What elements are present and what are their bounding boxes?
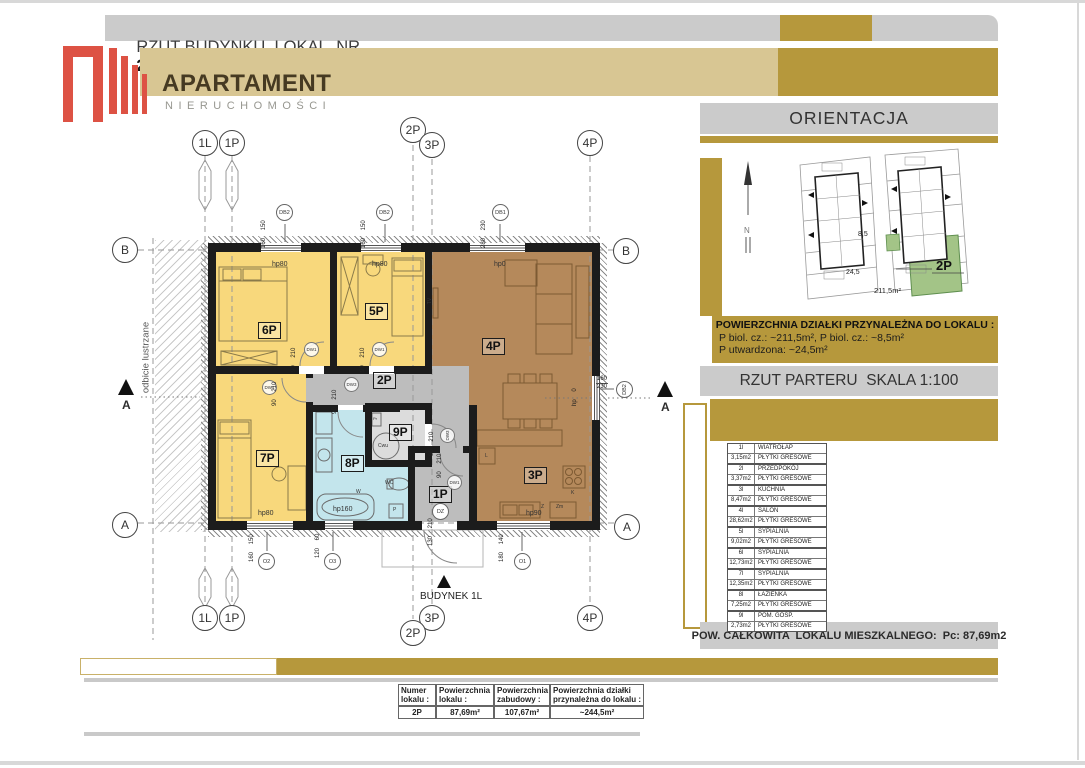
- wall: [592, 243, 600, 376]
- dim-dw3-9p: 90 210: [429, 432, 435, 456]
- legend-area: 3,37m2: [728, 475, 755, 485]
- bottom-white-bar: [80, 658, 277, 675]
- legend-row: 3lKUCHNIA8,47m2PŁYTKI GRESOWE: [727, 485, 827, 506]
- wall: [394, 366, 425, 374]
- room-label-5p: 5P: [365, 303, 388, 320]
- site-unit-label: 2P: [936, 258, 952, 273]
- gold-block: [710, 399, 998, 441]
- door-tag-dz: DZ: [432, 503, 449, 520]
- grid-4p-bottom: 4P: [577, 605, 603, 631]
- hp-7p: hp80: [258, 510, 274, 517]
- window-tag-db1: DB1: [492, 204, 509, 221]
- section-triangle-left: [118, 379, 134, 395]
- dim-db2-side: 160 230: [596, 376, 608, 391]
- room-label-8p: 8P: [341, 455, 364, 472]
- site-biol-small-label: 8,5: [858, 231, 868, 238]
- legend-area: 9,02m2: [728, 538, 755, 548]
- legend-row: 8lŁAZIENKA7,25m2PŁYTKI GRESOWE: [727, 590, 827, 611]
- legend-row: 2lPRZEDPOKÓJ3,37m2PŁYTKI GRESOWE: [727, 464, 827, 485]
- grid-1p-bottom: 1P: [219, 605, 245, 631]
- window-o3: [325, 521, 353, 530]
- legend-name: SYPIALNIA: [755, 570, 826, 580]
- fixture-k: K: [571, 490, 574, 496]
- orientation-gold-rule: [700, 136, 998, 143]
- wall: [365, 403, 432, 410]
- legend-no: 8l: [728, 591, 755, 601]
- window-tag-db2-left: DB2: [276, 204, 293, 221]
- grid-1l-bottom: 1L: [192, 605, 218, 631]
- window-db1: [470, 243, 525, 252]
- grid-b-right: B: [613, 238, 639, 264]
- legend-name: POM. GOSP.: [755, 612, 826, 622]
- wall: [293, 521, 325, 530]
- mirror-label: odbicie lustrzane: [141, 308, 152, 408]
- wall: [365, 460, 432, 467]
- grid-4p-top: 4P: [577, 130, 603, 156]
- wall: [592, 420, 600, 530]
- legend-finish: PŁYTKI GRESOWE: [755, 454, 826, 464]
- window-tag-o3: O3: [324, 553, 341, 570]
- grid-1p-top: 1P: [219, 130, 245, 156]
- legend-finish: PŁYTKI GRESOWE: [755, 559, 826, 569]
- window-tag-o1: O1: [514, 553, 531, 570]
- window-o2: [247, 521, 293, 530]
- page: { "colors": {"gold": "#B6983C", "tan": "…: [0, 0, 1085, 768]
- hp-3p: hp90: [526, 510, 542, 517]
- hp-4p: hp0: [494, 261, 506, 268]
- legend-area: 28,62m2: [728, 517, 755, 527]
- logo-name: APARTAMENT: [162, 70, 331, 98]
- north-label: N: [744, 226, 750, 235]
- legend-row: 7lSYPIALNIA12,35m2PŁYTKI GRESOWE: [727, 569, 827, 590]
- summary-header: Powierzchnia działki przynależna do loka…: [550, 684, 644, 706]
- legend-row: 5lSYPIALNIA9,02m2PŁYTKI GRESOWE: [727, 527, 827, 548]
- grid-a-left: A: [112, 512, 138, 538]
- section-triangle-right: [657, 381, 673, 397]
- fixture-l: L: [485, 453, 488, 459]
- legend-name: PRZEDPOKÓJ: [755, 465, 826, 475]
- legend-name: ŁAZIENKA: [755, 591, 826, 601]
- hatch-left: [201, 243, 208, 530]
- room-legend: 1lWIATROŁAP3,15m2PŁYTKI GRESOWE 2lPRZEDP…: [727, 443, 827, 632]
- summary-header: Numer lokalu :: [398, 684, 436, 706]
- logo-subtitle: NIERUCHOMOŚCI: [165, 100, 331, 112]
- site-paved-label: 24,5: [846, 269, 860, 276]
- wall: [216, 366, 299, 374]
- legend-row: 9lPOM. GOSP.2,73m2PŁYTKI GRESOWE: [727, 611, 827, 632]
- summary-header: Powierzchnia zabudowy :: [494, 684, 550, 706]
- legend-area: 2,73m2: [728, 622, 755, 632]
- grid-a-right: A: [614, 514, 640, 540]
- dim-dw1-7p: 90 210: [272, 382, 278, 406]
- fixture-w: W: [356, 489, 361, 495]
- wall: [425, 366, 432, 374]
- legend-no: 3l: [728, 486, 755, 496]
- dim-db1: 280 230: [481, 220, 487, 248]
- window-o1: [497, 521, 550, 530]
- dim-dz: 130 210: [428, 518, 434, 546]
- plot-info-line1: P biol. cz.: ~211,5m², P biol. cz.: ~8,5…: [712, 332, 998, 344]
- north-arrow: [744, 161, 752, 253]
- summary-value: 2P: [398, 706, 436, 719]
- orientation-title: ORIENTACJA: [789, 108, 909, 129]
- room-label-9p: 9P: [389, 424, 412, 441]
- dim-db2-side-w: 160: [596, 376, 608, 384]
- grid-1l-top: 1L: [192, 130, 218, 156]
- wall: [353, 521, 422, 530]
- wall: [306, 374, 313, 378]
- room-label-1p: 1P: [429, 486, 452, 503]
- plot-info-line2: P utwardzona: ~24,5m²: [712, 344, 998, 356]
- room-label-2p: 2P: [373, 372, 396, 389]
- logo-gold-band: [778, 48, 998, 96]
- legend-name: SYPIALNIA: [755, 549, 826, 559]
- legend-no: 4l: [728, 507, 755, 517]
- building-triangle: [437, 575, 451, 588]
- door-tag-dw3-9p: DW3: [440, 428, 455, 443]
- dim-dw1-5p: 90 210: [360, 348, 366, 372]
- door-tag-dw1-6p: DW1: [304, 342, 319, 357]
- legend-finish: PŁYTKI GRESOWE: [755, 580, 826, 590]
- summary-table: Numer lokalu : Powierzchnia lokalu : Pow…: [398, 684, 644, 719]
- dim-o2: 160 150: [249, 534, 255, 562]
- legend-no: 2l: [728, 465, 755, 475]
- grid-3p-top: 3P: [419, 132, 445, 158]
- dim-dw1-6p: 90 210: [291, 348, 297, 372]
- legend-name: SALON: [755, 507, 826, 517]
- section-title: RZUT PARTERU SKALA 1:100: [740, 372, 959, 390]
- bottom-shadow-line-1: [84, 678, 998, 682]
- legend-no: 6l: [728, 549, 755, 559]
- summary-header: Powierzchnia lokalu :: [436, 684, 494, 706]
- summary-value: 107,67m²: [494, 706, 550, 719]
- legend-no: 7l: [728, 570, 755, 580]
- building-label: BUDYNEK 1L: [420, 591, 482, 602]
- legend-area: 12,35m2: [728, 580, 755, 590]
- plot-info-box: POWIERZCHNIA DZIAŁKI PRZYNALEŻNA DO LOKA…: [712, 316, 998, 363]
- wall: [330, 252, 337, 366]
- legend-finish: PŁYTKI GRESOWE: [755, 538, 826, 548]
- room-label-7p: 7P: [256, 450, 279, 467]
- logo-icon: [63, 42, 155, 124]
- fixture-z: Z: [541, 504, 544, 510]
- bottom-shadow-line-2: [84, 732, 640, 736]
- legend-area: 12,73m2: [728, 559, 755, 569]
- corridor-patch-fill: [432, 366, 469, 374]
- hatch-bottom: [208, 530, 600, 537]
- site-plan: N 8,5 24,5 211,5m² 2P: [700, 143, 1000, 316]
- dim-o3: 120 60: [315, 534, 321, 558]
- dim-dw1-1p: 90 210: [437, 454, 443, 478]
- section-title-bar: RZUT PARTERU SKALA 1:100: [700, 366, 998, 396]
- hp-5p: hp80: [372, 261, 388, 268]
- wall: [401, 243, 470, 252]
- window-db2-mid: [361, 243, 401, 252]
- dim-db2-left: 160 150: [261, 220, 267, 248]
- wall: [365, 403, 372, 467]
- legend-finish: PŁYTKI GRESOWE: [755, 601, 826, 611]
- page-bottom-border: [0, 761, 1085, 765]
- legend-area: 3,15m2: [728, 454, 755, 464]
- dim-dw3-corridor: 90 210: [332, 390, 338, 414]
- section-label-right: A: [661, 400, 670, 414]
- wall: [301, 243, 361, 252]
- page-right-border: [1077, 3, 1079, 760]
- header-gold-accent: [780, 15, 872, 41]
- window-db2-left: [261, 243, 301, 252]
- wall: [425, 252, 432, 366]
- legend-name: SYPIALNIA: [755, 528, 826, 538]
- room-label-6p: 6P: [258, 322, 281, 339]
- grid-2p-bottom: 2P: [400, 620, 426, 646]
- room-label-4p: 4P: [482, 338, 505, 355]
- window-tag-o2: O2: [258, 553, 275, 570]
- hp-0-side: hp 0: [572, 388, 578, 406]
- wall: [306, 402, 313, 522]
- legend-finish: PŁYTKI GRESOWE: [755, 475, 826, 485]
- wall: [525, 243, 600, 252]
- dim-db2-mid: 160 150: [361, 220, 367, 248]
- page-top-border: [0, 0, 1085, 3]
- site-green-small: [886, 234, 900, 251]
- wall: [425, 403, 432, 424]
- dim-db2-side-h: 230: [596, 384, 608, 391]
- gold-outline-rect: [683, 403, 707, 629]
- fixture-p: P: [393, 507, 396, 513]
- legend-no: 1l: [728, 444, 755, 454]
- summary-value: ~244,5m²: [550, 706, 644, 719]
- wall: [208, 243, 216, 530]
- site-green-area-label: 211,5m²: [874, 286, 901, 295]
- legend-finish: PŁYTKI GRESOWE: [755, 496, 826, 506]
- fixture-tv: TV: [427, 298, 433, 304]
- door-tag-dw3-corridor: DW3: [344, 377, 359, 392]
- door-tag-dw1-5p: DW1: [372, 342, 387, 357]
- legend-area: 7,25m2: [728, 601, 755, 611]
- wall: [457, 521, 497, 530]
- orientation-title-bar: ORIENTACJA: [700, 103, 998, 134]
- fixture-cwu: Cwu: [378, 443, 388, 449]
- room-4p-fill: [432, 252, 592, 366]
- legend-finish: PŁYTKI GRESOWE: [755, 517, 826, 527]
- fixture-wc: WC: [385, 480, 393, 486]
- legend-name: KUCHNIA: [755, 486, 826, 496]
- legend-no: 9l: [728, 612, 755, 622]
- fixture-pr: Pr: [373, 416, 377, 421]
- wall: [408, 446, 415, 522]
- legend-row: 6lSYPIALNIA12,73m2PŁYTKI GRESOWE: [727, 548, 827, 569]
- window-tag-db2-mid: DB2: [376, 204, 393, 221]
- dim-o1: 180 140: [499, 534, 505, 562]
- bottom-gold-bar: [277, 658, 998, 675]
- legend-area: 8,47m2: [728, 496, 755, 506]
- legend-no: 5l: [728, 528, 755, 538]
- hp-8p: hp160: [333, 506, 352, 513]
- legend-finish: PŁYTKI GRESOWE: [755, 622, 826, 632]
- room-7p-fill: [216, 374, 306, 522]
- wall: [469, 405, 477, 522]
- door-tag-dw1-1p: DW1: [447, 475, 462, 490]
- summary-value: 87,69m²: [436, 706, 494, 719]
- fixture-zm: Zm: [556, 504, 563, 510]
- plot-info-heading: POWIERZCHNIA DZIAŁKI PRZYNALEŻNA DO LOKA…: [712, 319, 998, 331]
- legend-row: 4lSALON28,62m2PŁYTKI GRESOWE: [727, 506, 827, 527]
- grid-b-left: B: [112, 237, 138, 263]
- hp-6p: hp80: [272, 261, 288, 268]
- section-label-left: A: [122, 398, 131, 412]
- legend-name: WIATROŁAP: [755, 444, 826, 454]
- window-tag-db2-side: DB2: [616, 381, 633, 398]
- room-label-3p: 3P: [524, 467, 547, 484]
- legend-row: 1lWIATROŁAP3,15m2PŁYTKI GRESOWE: [727, 443, 827, 464]
